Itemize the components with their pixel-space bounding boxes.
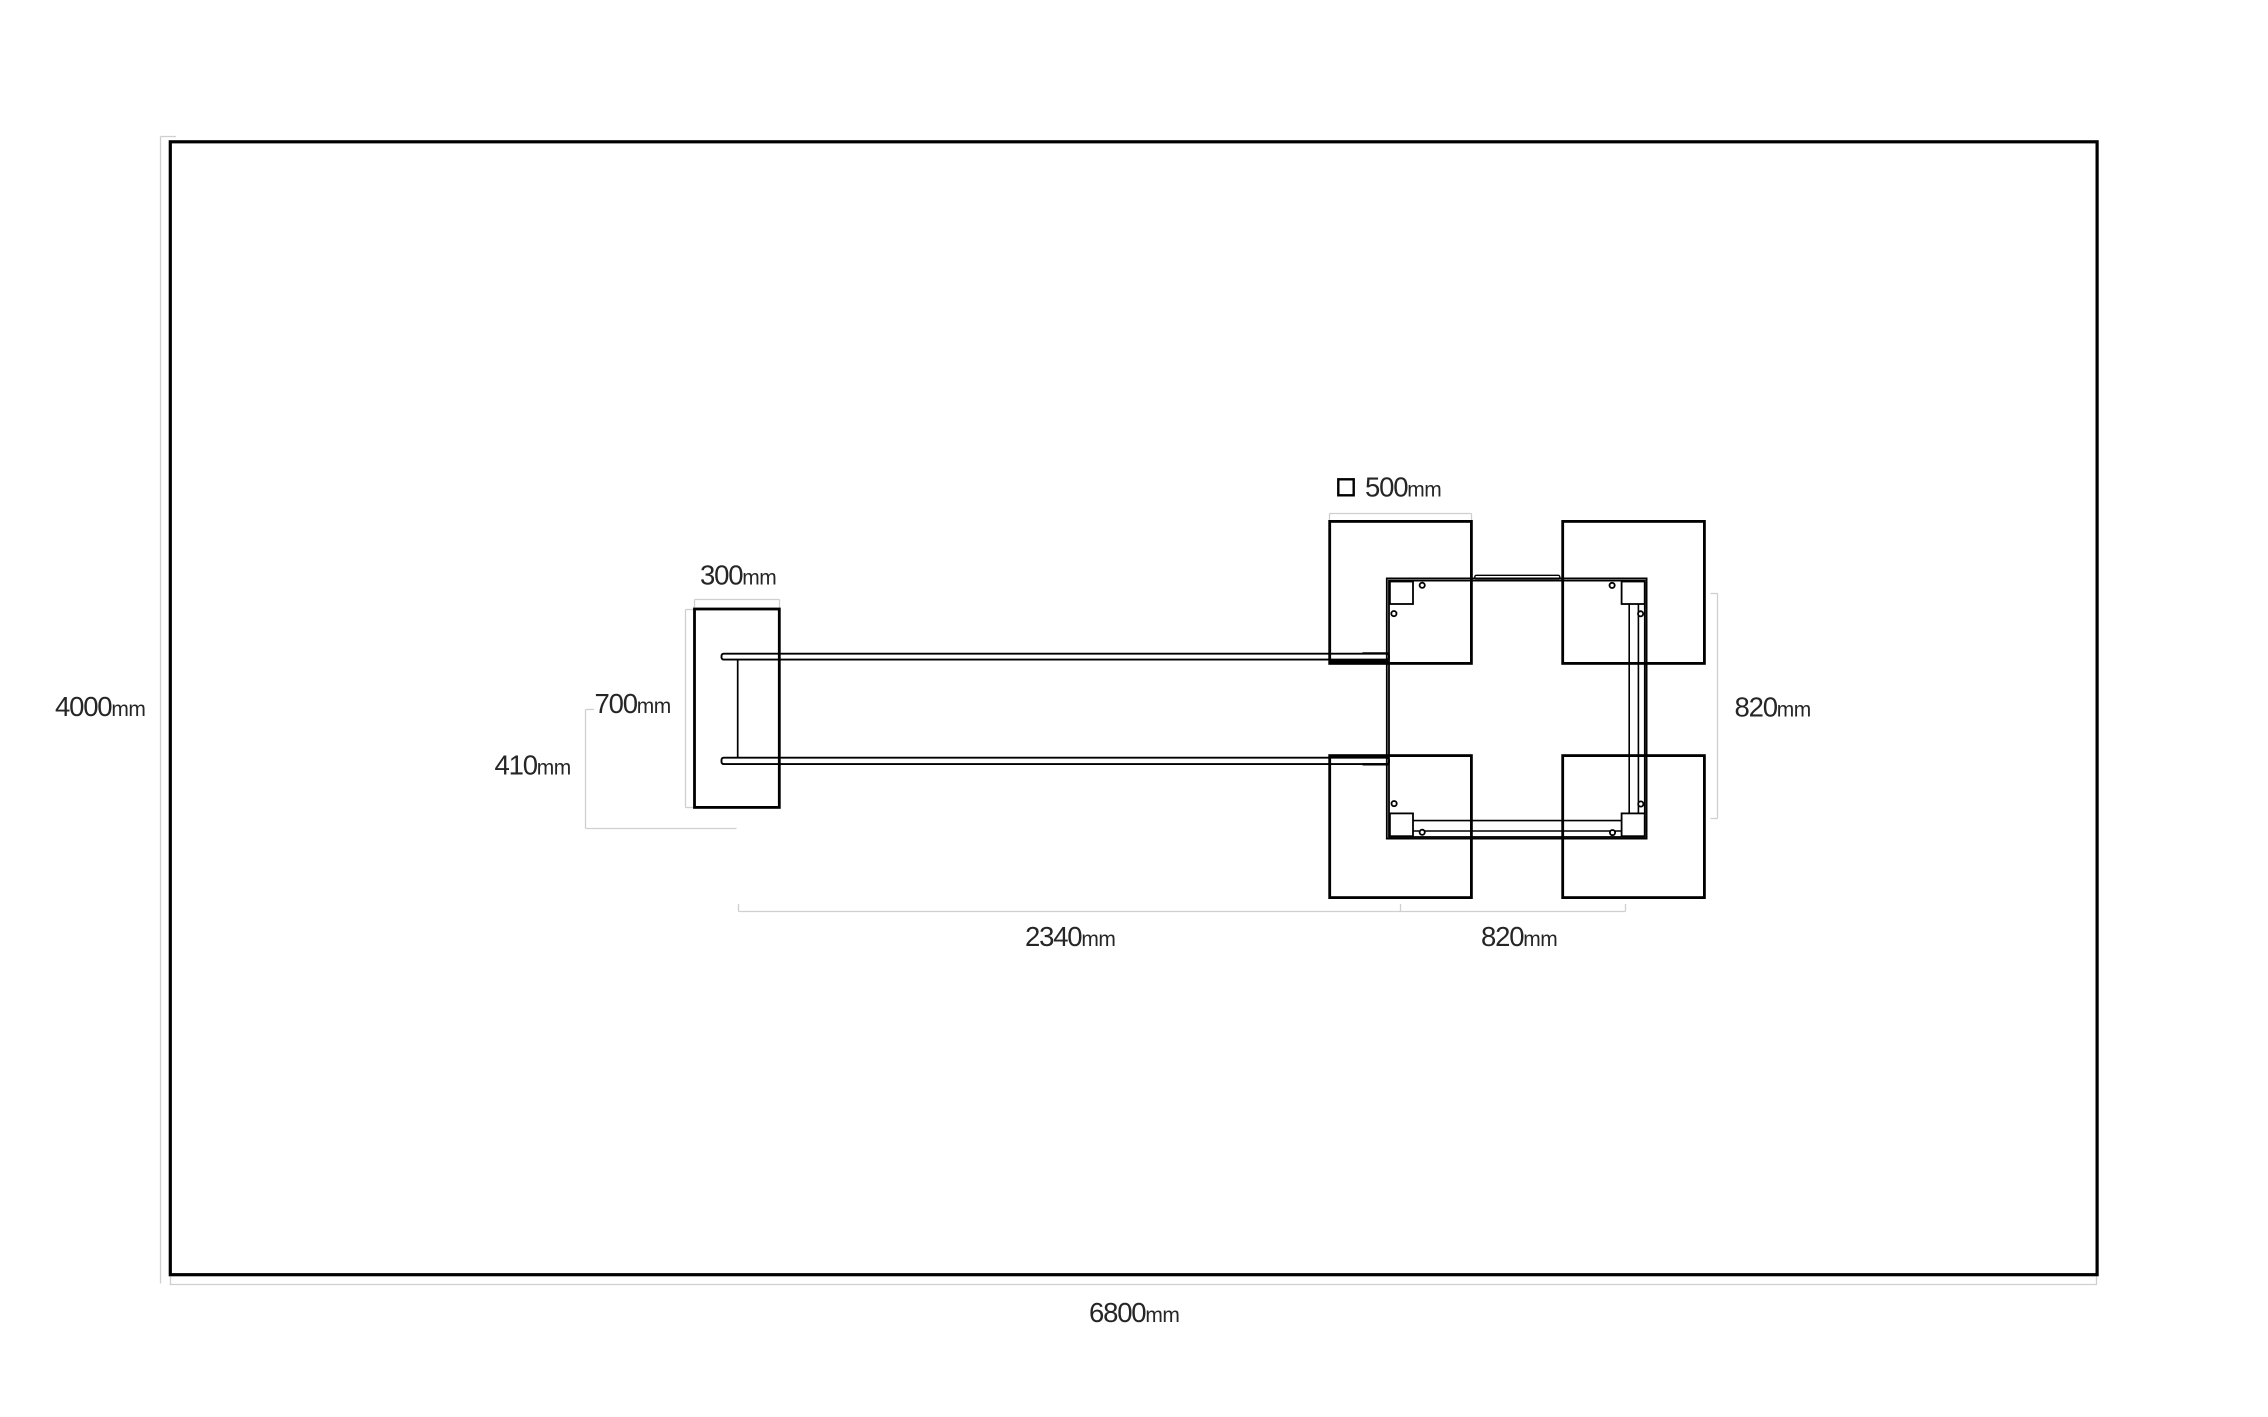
svg-text:820mm: 820mm [1735,691,1811,722]
svg-text:4000mm: 4000mm [55,691,145,722]
svg-text:410mm: 410mm [495,749,571,780]
svg-text:500mm: 500mm [1365,471,1441,502]
svg-text:700mm: 700mm [595,688,671,719]
svg-text:2340mm: 2340mm [1025,921,1115,952]
svg-text:6800mm: 6800mm [1089,1297,1179,1328]
svg-text:300mm: 300mm [700,560,776,591]
svg-text:820mm: 820mm [1481,921,1557,952]
